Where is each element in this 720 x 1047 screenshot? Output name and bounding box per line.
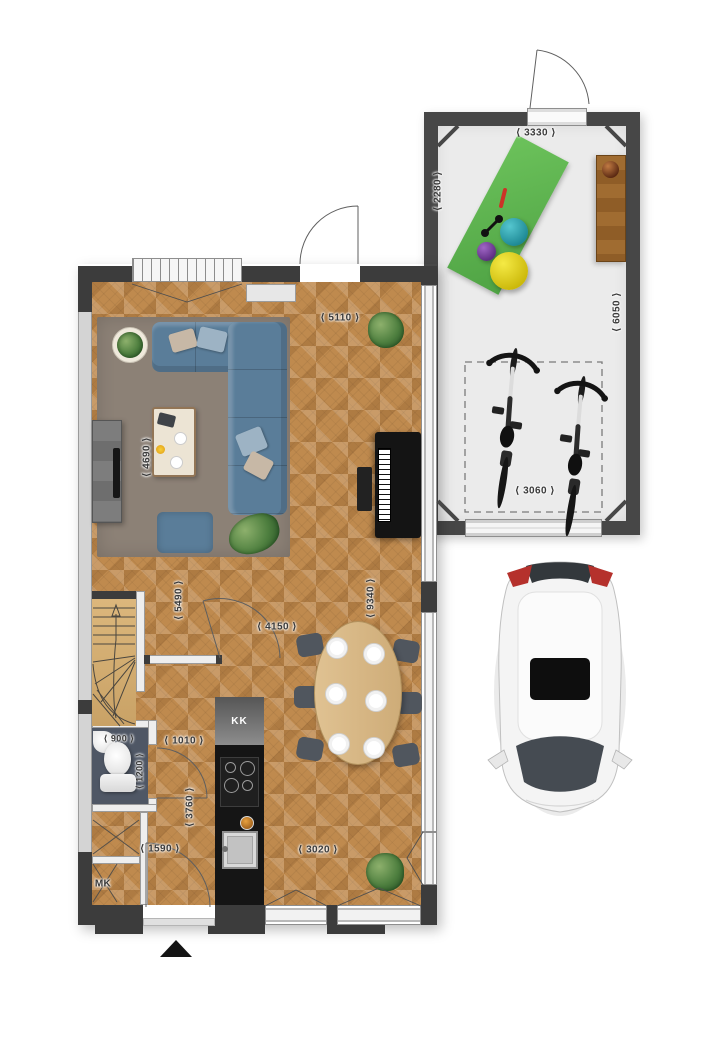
garage-wall-right: [626, 112, 640, 535]
car-windshield: [516, 736, 604, 792]
sill-block-3: [327, 925, 385, 934]
window-bottom-dining: [337, 905, 421, 925]
window-right-dining: [421, 612, 437, 832]
hall-living-wall: [144, 655, 222, 664]
stairs-side-wall: [136, 591, 145, 692]
entrance-threshold: [143, 918, 215, 926]
car: [486, 556, 634, 822]
dining-chair-3: [295, 736, 324, 762]
hob-ring-3: [224, 778, 239, 793]
mk-wall-mid: [92, 856, 140, 864]
exercise-ball-purple: [477, 242, 496, 261]
hall-wall-cap-left: [144, 655, 150, 664]
toilet-bowl: [104, 742, 131, 776]
hob-ring-4: [242, 780, 253, 791]
plate-1: [326, 637, 348, 659]
coffee-table-plate-2: [170, 456, 183, 469]
dimension-entrance-zone: ⟨ 1590 ⟩: [140, 844, 180, 855]
garage-side-door: [527, 108, 587, 126]
wall-bottom-2: [215, 905, 265, 925]
dimension-dining-width: ⟨ 4150 ⟩: [257, 622, 297, 633]
window-right-living: [421, 285, 437, 582]
toilet-wall-right-a: [148, 720, 157, 745]
wall-right-seg2: [421, 582, 437, 612]
hob-ring-1: [225, 762, 236, 773]
piano-keys: [378, 448, 391, 522]
dimension-garage-width: ⟨ 3330 ⟩: [516, 128, 556, 139]
piano-bench: [357, 467, 372, 511]
kitchen-upper-cabinet: KK: [215, 697, 264, 745]
dimension-kitchen-wall: ⟨ 3760 ⟩: [185, 787, 196, 827]
wall-right-seg3: [421, 885, 437, 925]
sink-basin: [227, 836, 253, 864]
garage-wall-bottom-right: [602, 521, 640, 535]
dimension-stair-hall-depth: ⟨ 5490 ⟩: [174, 580, 185, 620]
car-sunroof: [530, 658, 590, 700]
floorplan-canvas: MK KK ⟨ 511: [0, 0, 720, 1047]
dimension-garage-door: ⟨ 3060 ⟩: [515, 486, 555, 497]
toilet-wall-bottom: [92, 804, 157, 812]
wall-left-seg1: [78, 266, 92, 312]
coffee-table-plate-1: [174, 432, 187, 445]
plate-4: [365, 690, 387, 712]
wall-bottom-1: [78, 905, 143, 925]
dimension-living-depth: ⟨ 4690 ⟩: [142, 437, 153, 477]
plate-5: [328, 733, 350, 755]
sill-block-1: [95, 925, 143, 934]
garage-wall-top-left: [424, 112, 527, 126]
plant-side-table: [117, 332, 143, 358]
exercise-ball-teal: [500, 218, 528, 246]
coffee-table-flower: [156, 445, 165, 454]
sill-block-2: [208, 925, 265, 934]
wall-left: [78, 266, 92, 925]
window-bottom-kitchen: [265, 905, 327, 925]
toilet-tank: [100, 774, 136, 792]
dimension-toilet-width: ⟨ 900 ⟩: [103, 734, 134, 745]
garage-roller-door: [465, 519, 602, 537]
dimension-toilet-depth: ⟨ 1200 ⟩: [135, 753, 146, 789]
dimension-garage-length: ⟨ 6050 ⟩: [612, 292, 623, 332]
dimension-living-width: ⟨ 5110 ⟩: [320, 313, 360, 324]
sink-faucet: [222, 846, 228, 852]
wall-right-seg1: [421, 266, 437, 286]
dimension-hall-width: ⟨ 1010 ⟩: [164, 736, 204, 747]
exercise-ball-yellow: [490, 252, 528, 290]
hob-ring-2: [240, 761, 255, 776]
wall-top-mid: [242, 266, 300, 282]
dimension-garage-front: ⟨ 2280 ⟩: [433, 171, 444, 211]
hall-wall-cap-right: [216, 655, 222, 664]
sofa-right-arm: [228, 322, 287, 515]
mk-wall-right: [140, 812, 148, 905]
window-sill-top: [246, 284, 296, 302]
sofa-ottoman: [157, 512, 213, 553]
window-right-small: [421, 832, 437, 885]
plant-living-corner: [368, 312, 404, 348]
plate-6: [363, 737, 385, 759]
tv-screen: [113, 448, 120, 498]
dimension-open-plan-length: ⟨ 9340 ⟩: [366, 578, 377, 618]
wall-bottom-pier: [327, 905, 337, 925]
dining-chair-6: [391, 742, 420, 768]
kitchen-unit-label: KK: [231, 716, 247, 727]
wall-left-seg2: [78, 700, 92, 714]
north-arrow: [160, 940, 192, 957]
meter-cupboard-label: MK: [95, 879, 111, 890]
staircase: [92, 599, 136, 726]
window-top-living: [132, 258, 242, 282]
dimension-kitchen-zone: ⟨ 3020 ⟩: [298, 845, 338, 856]
plant-dining-corner: [366, 853, 404, 891]
bench-pot: [602, 161, 619, 178]
plate-2: [363, 643, 385, 665]
plate-3: [325, 683, 347, 705]
coffee-cup: [240, 816, 254, 830]
